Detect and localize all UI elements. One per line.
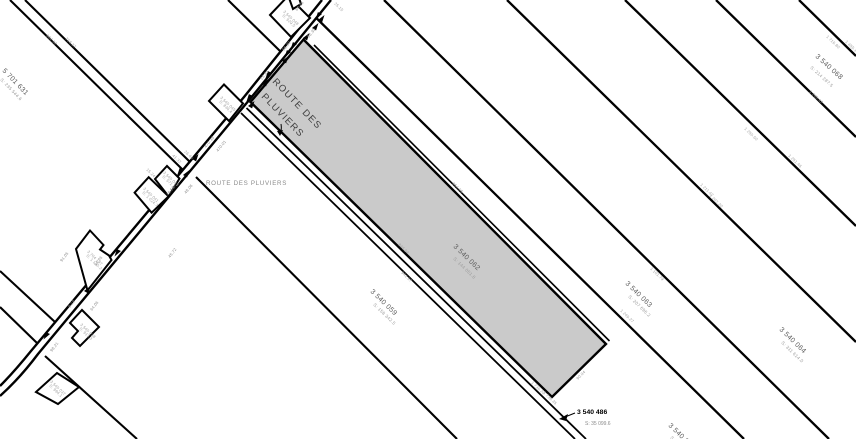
- svg-text:ROUTE DES PLUVIERS: ROUTE DES PLUVIERS: [206, 180, 287, 187]
- svg-text:S: 35 099.6: S: 35 099.6: [585, 421, 611, 427]
- svg-text:3 540 486: 3 540 486: [577, 409, 607, 416]
